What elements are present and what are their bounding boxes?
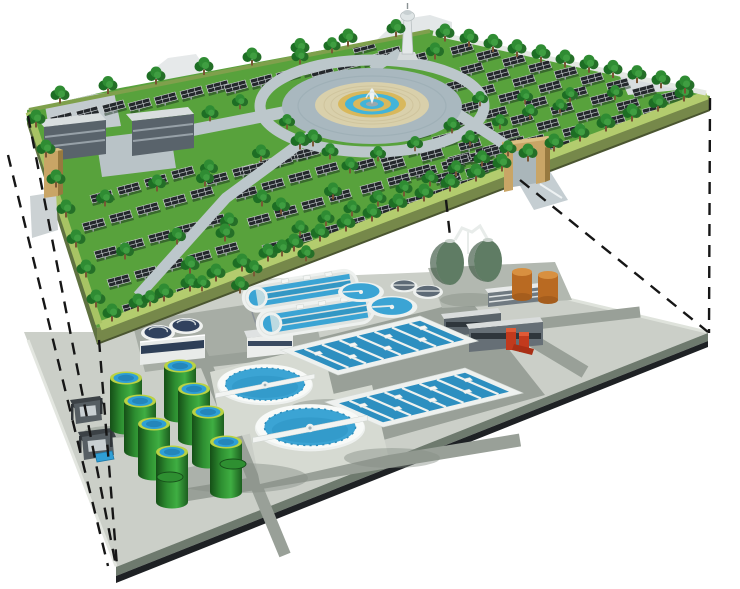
primary-clarifier	[367, 296, 418, 318]
solar-panel	[640, 142, 665, 158]
tank-ground-pad	[220, 459, 246, 469]
tank-ground-pad	[157, 472, 183, 482]
solar-panel	[600, 152, 625, 168]
covered-clarifier	[413, 285, 443, 299]
cutaway-diagram	[0, 0, 740, 589]
projection-line	[709, 98, 710, 333]
solar-panel	[588, 168, 613, 184]
scene-illustration	[0, 0, 740, 589]
entrance-gate-left	[30, 148, 63, 238]
solar-panel	[626, 158, 651, 174]
tree	[339, 29, 358, 47]
